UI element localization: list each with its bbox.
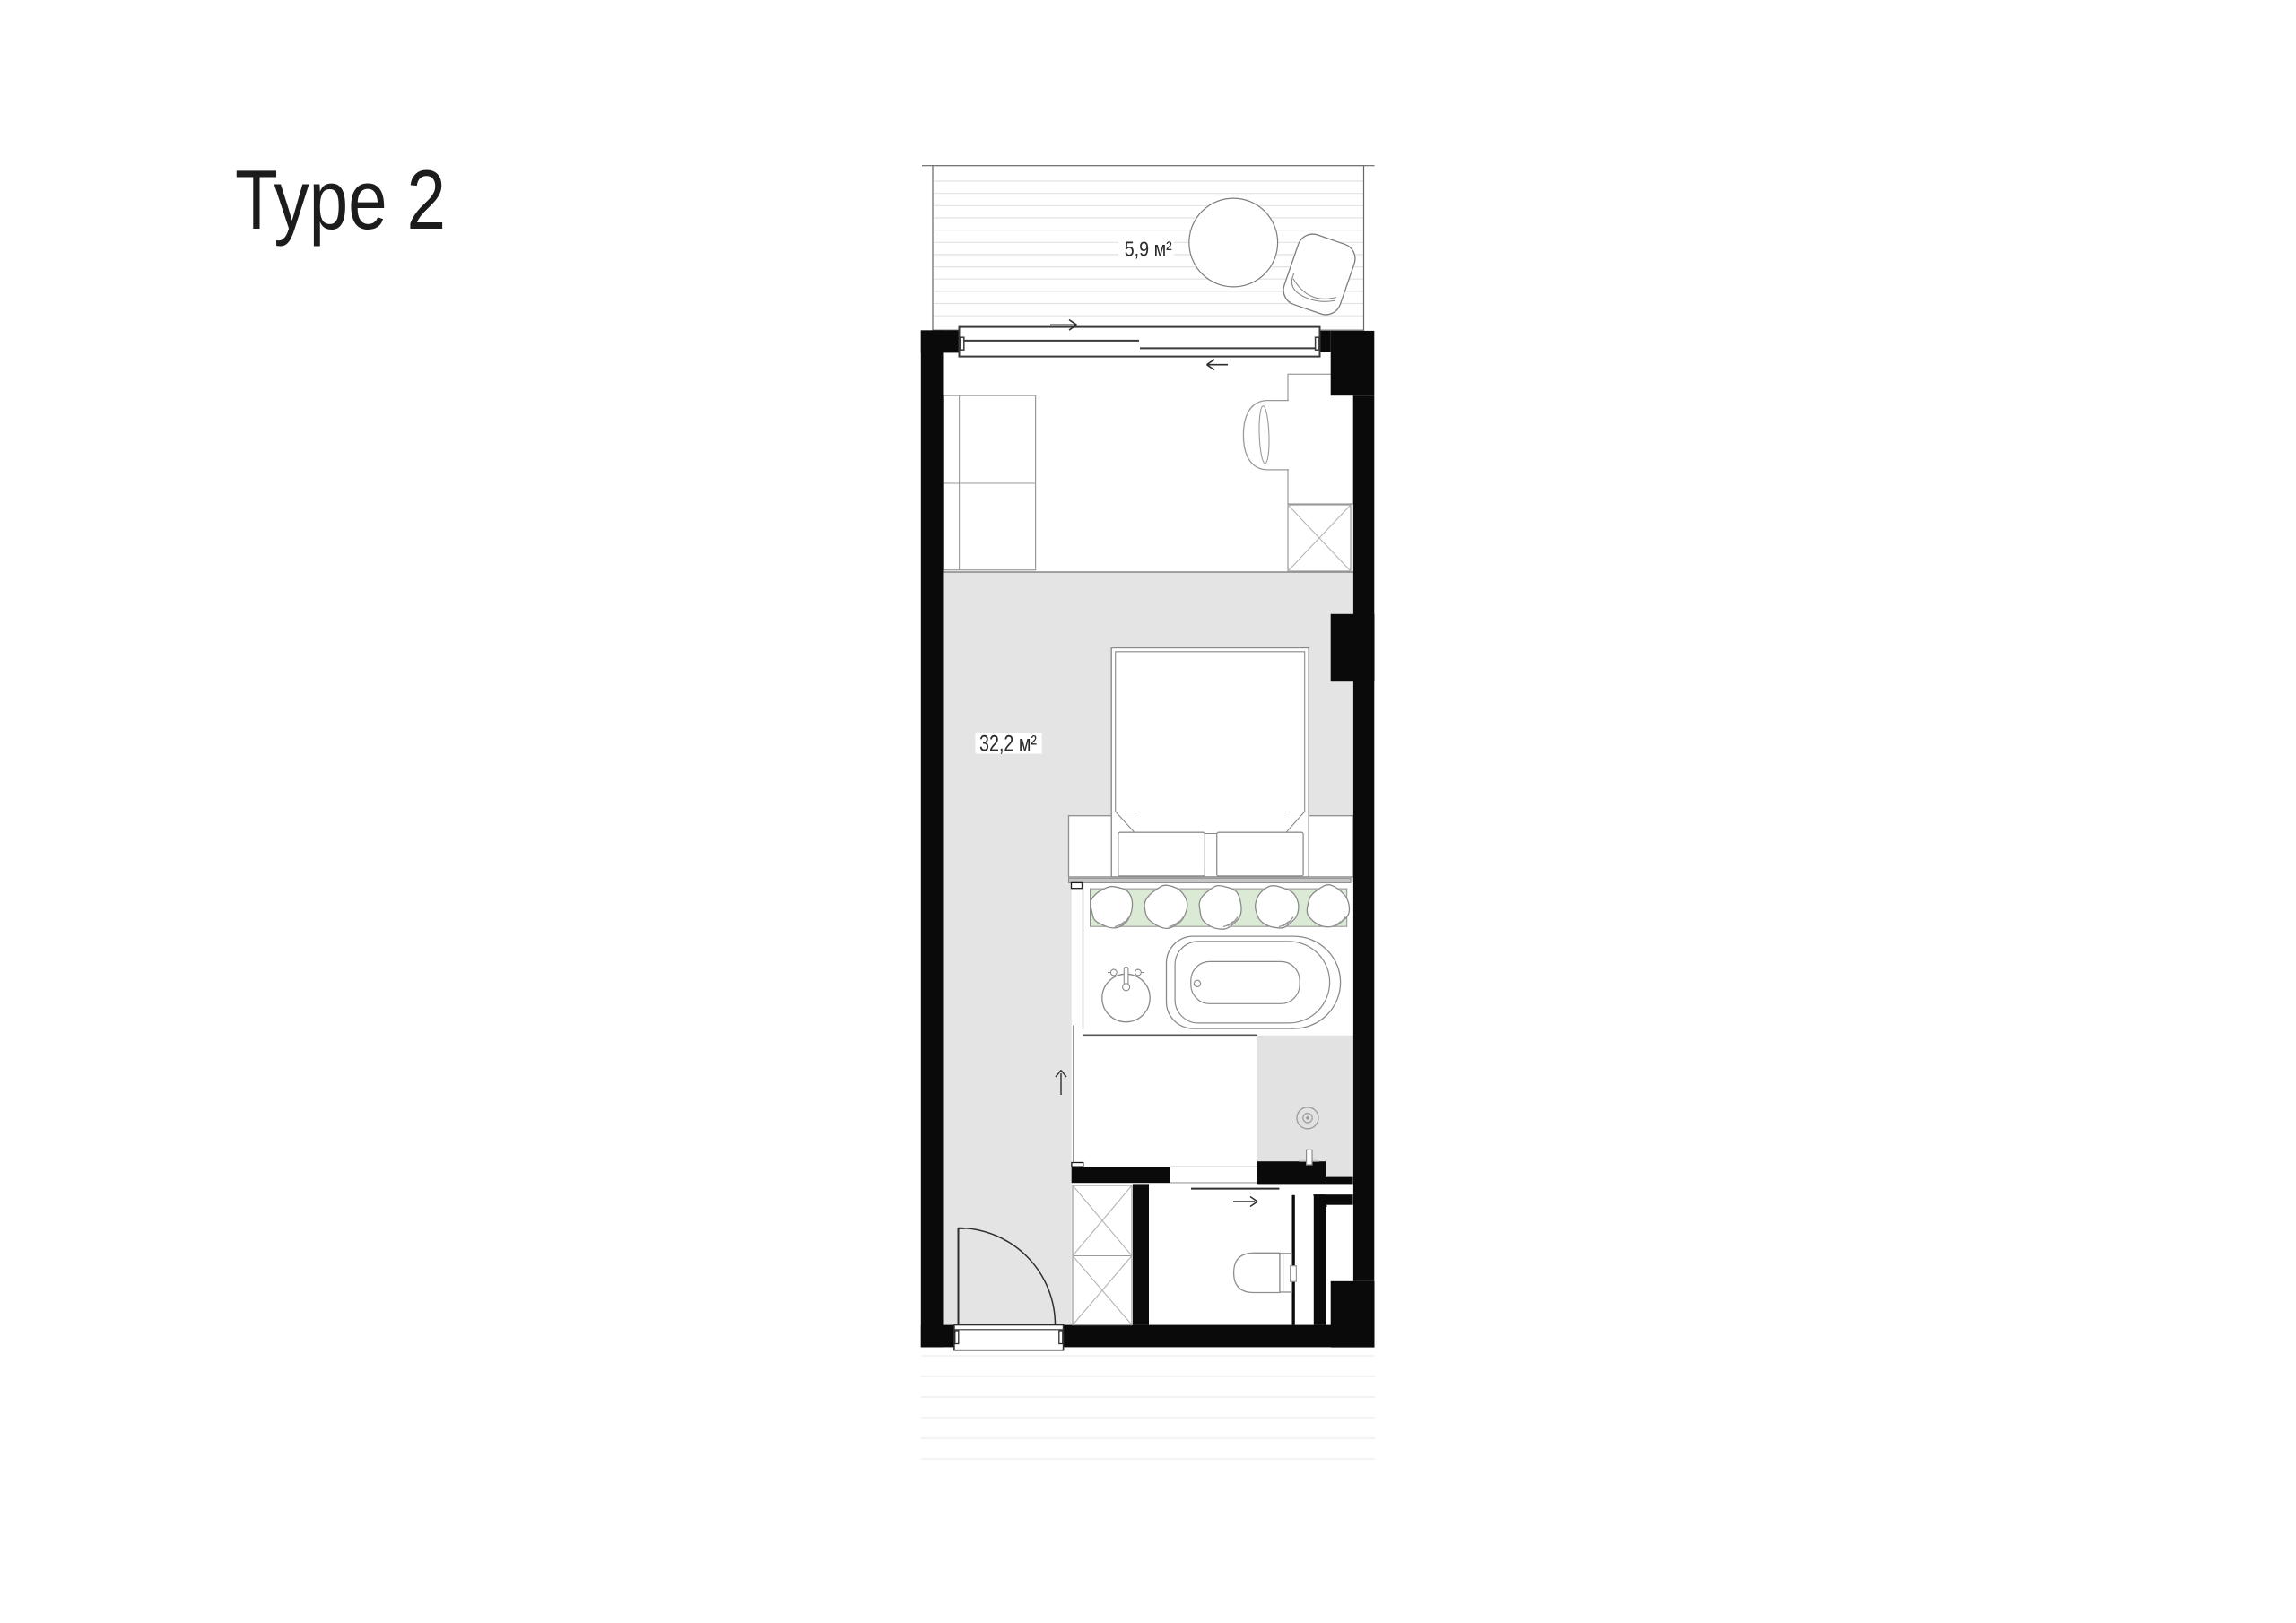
- svg-text:5,9 м²: 5,9 м²: [1125, 238, 1172, 261]
- svg-text:32,2 м²: 32,2 м²: [979, 732, 1037, 757]
- svg-text:Type 2: Type 2: [235, 152, 446, 247]
